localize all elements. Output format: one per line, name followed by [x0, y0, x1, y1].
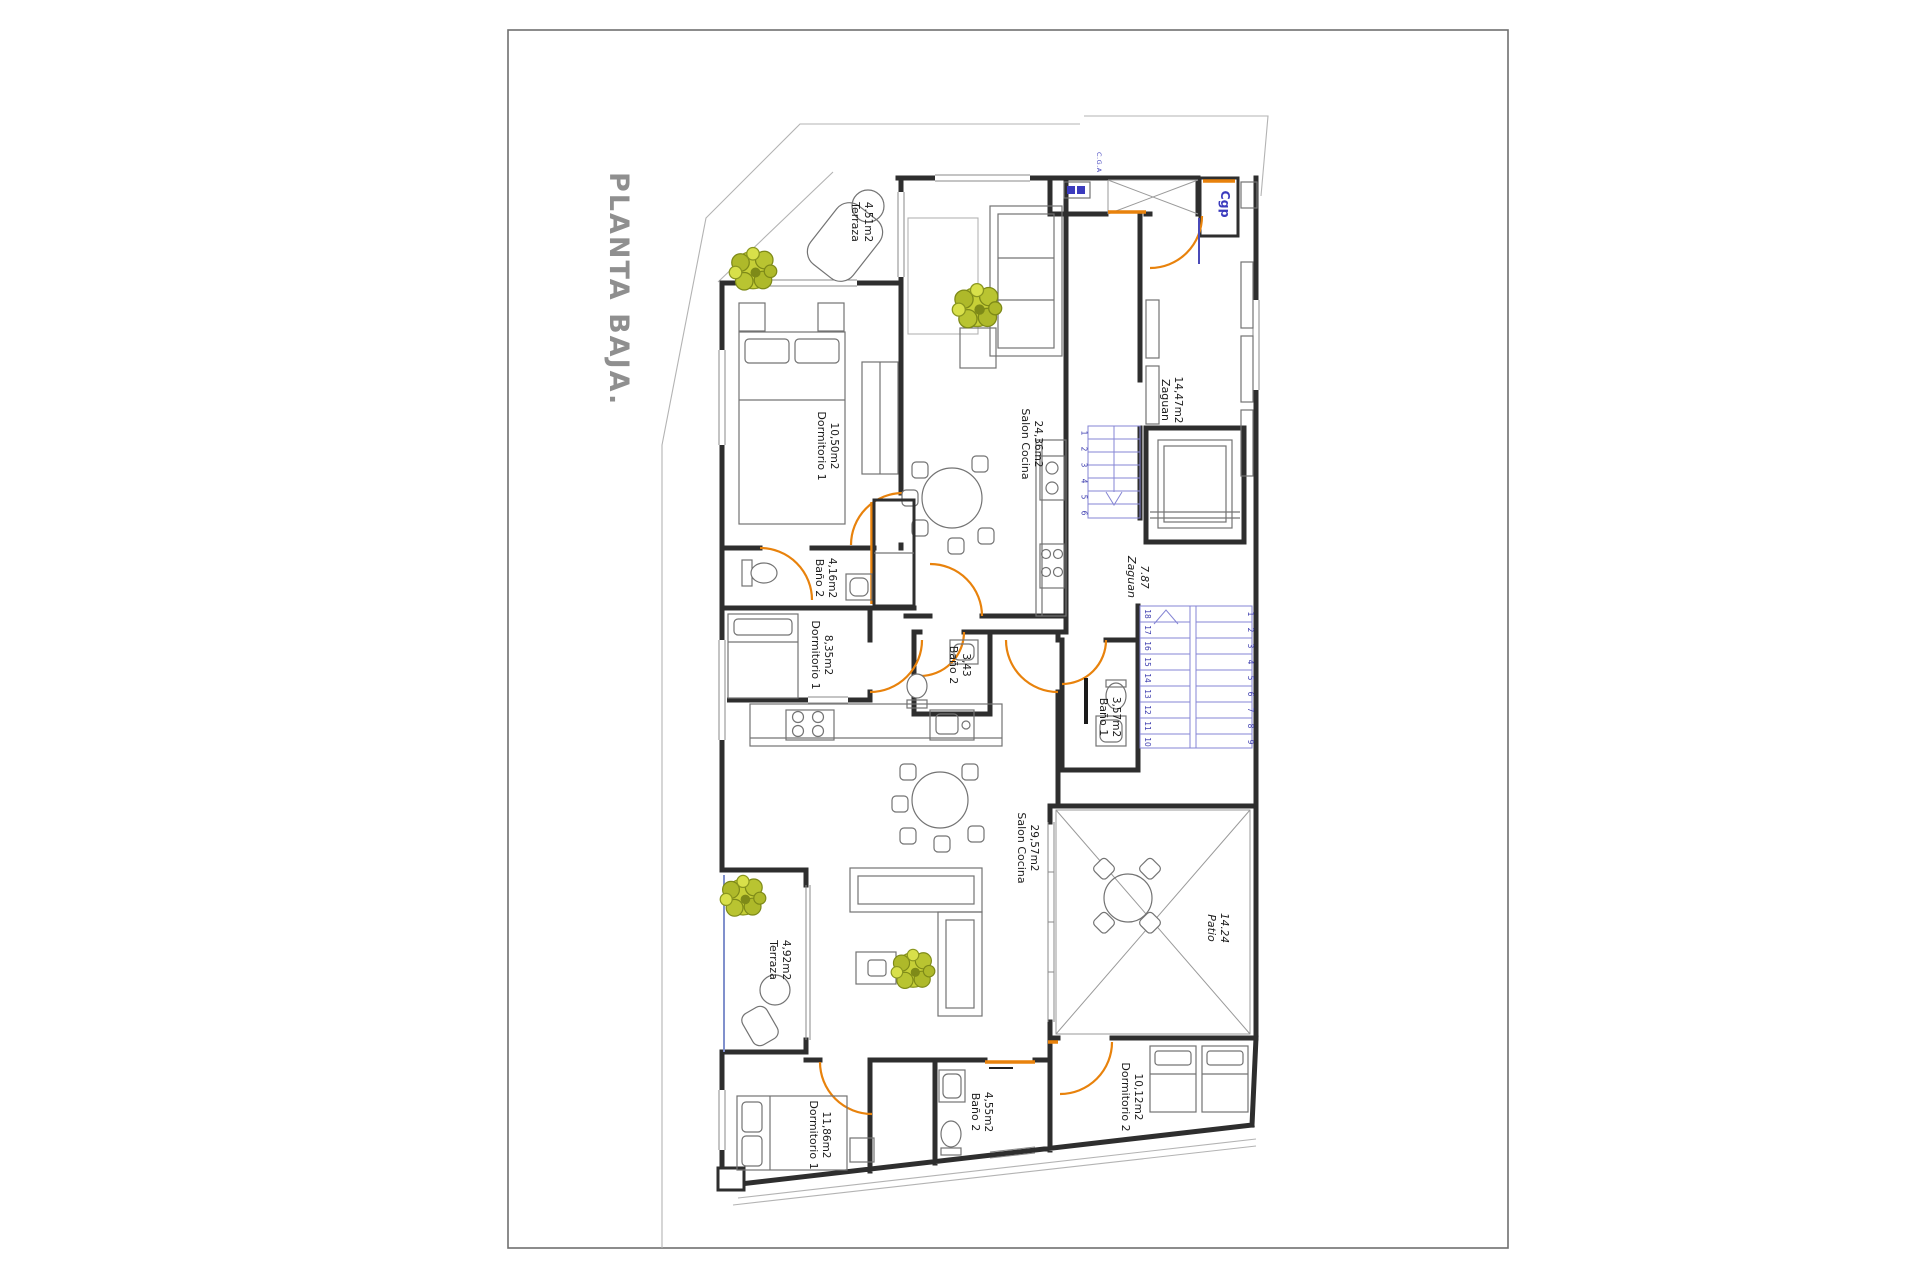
- room-label-terraza1: Terraza4.51m2: [849, 201, 874, 242]
- svg-text:Dormitorio 1: Dormitorio 1: [815, 411, 828, 480]
- svg-text:Dormitorio 2: Dormitorio 2: [1119, 1062, 1132, 1131]
- svg-text:Salon Cocina: Salon Cocina: [1015, 812, 1028, 883]
- svg-text:Baño 2: Baño 2: [813, 559, 826, 597]
- svg-text:13: 13: [1143, 689, 1152, 699]
- svg-text:15: 15: [1143, 657, 1152, 667]
- room-label-zaguan1: Zaguan14,47m2: [1159, 377, 1184, 424]
- svg-text:10,50m2: 10,50m2: [828, 423, 840, 470]
- page-title: PLANTA BAJA.: [603, 172, 634, 406]
- toilet-bano2b: [907, 674, 927, 698]
- svg-text:4,92m2: 4,92m2: [780, 940, 792, 980]
- svg-text:10: 10: [1143, 737, 1152, 747]
- cga-label: C.G.A: [1095, 152, 1103, 173]
- svg-text:Salon Cocina: Salon Cocina: [1019, 408, 1032, 479]
- svg-text:Baño 2: Baño 2: [969, 1093, 982, 1131]
- svg-text:17: 17: [1143, 625, 1152, 635]
- toilet-bano2a: [751, 563, 777, 583]
- svg-text:3: 3: [1080, 463, 1089, 468]
- svg-text:11: 11: [1143, 721, 1152, 731]
- svg-text:14,47m2: 14,47m2: [1172, 377, 1184, 424]
- svg-text:4: 4: [1246, 660, 1255, 665]
- svg-text:14.24: 14.24: [1218, 913, 1230, 943]
- svg-text:6: 6: [1080, 511, 1089, 516]
- svg-text:2: 2: [1246, 628, 1255, 633]
- svg-text:Terraza: Terraza: [849, 201, 862, 242]
- svg-text:Dormitorio 1: Dormitorio 1: [809, 620, 822, 689]
- svg-text:3: 3: [1246, 644, 1255, 649]
- page-border: [508, 30, 1508, 1248]
- svg-text:2: 2: [1080, 447, 1089, 452]
- svg-text:Baño 1: Baño 1: [1097, 698, 1110, 736]
- svg-text:7.87: 7.87: [1138, 565, 1150, 589]
- svg-text:5: 5: [1080, 495, 1089, 500]
- svg-text:29,57m2: 29,57m2: [1028, 825, 1040, 872]
- svg-text:12: 12: [1143, 705, 1152, 715]
- svg-text:8,35m2: 8,35m2: [822, 635, 834, 675]
- svg-text:10,12m2: 10,12m2: [1132, 1074, 1144, 1121]
- svg-text:8: 8: [1246, 724, 1255, 729]
- svg-text:Dormitorio 1: Dormitorio 1: [807, 1100, 820, 1169]
- svg-text:Zaguan: Zaguan: [1159, 379, 1172, 421]
- floor-plan-canvas: PLANTA BAJA. Cgp C.G.A: [0, 0, 1920, 1280]
- floor-plan-sheet: PLANTA BAJA. Cgp C.G.A: [0, 0, 1920, 1280]
- toilet-bano2c: [941, 1121, 961, 1147]
- room-label-bano2c: Baño 24,55m2: [969, 1092, 994, 1132]
- svg-text:Patio: Patio: [1205, 914, 1218, 942]
- room-label-bano1: Baño 13,57m2: [1097, 697, 1122, 737]
- room-label-bano2a: Baño 24,16m2: [813, 558, 838, 598]
- corner-post: [718, 1168, 744, 1190]
- room-label-terraza2: Terraza4,92m2: [767, 939, 792, 980]
- svg-text:7: 7: [1246, 708, 1255, 713]
- svg-text:5: 5: [1246, 676, 1255, 681]
- svg-text:Baño 2: Baño 2: [947, 646, 960, 684]
- svg-text:Zaguan: Zaguan: [1125, 555, 1138, 598]
- svg-text:11,86m2: 11,86m2: [820, 1112, 832, 1159]
- svg-text:4,16m2: 4,16m2: [826, 558, 838, 598]
- svg-text:Terraza: Terraza: [767, 939, 780, 980]
- svg-text:3,43: 3,43: [960, 653, 972, 676]
- svg-text:4.51m2: 4.51m2: [862, 202, 874, 242]
- svg-text:6: 6: [1246, 692, 1255, 697]
- svg-text:18: 18: [1143, 609, 1152, 619]
- svg-text:PLANTA BAJA.: PLANTA BAJA.: [603, 172, 634, 406]
- svg-text:1: 1: [1246, 612, 1255, 617]
- svg-text:3,57m2: 3,57m2: [1110, 697, 1122, 737]
- svg-text:24,36m2: 24,36m2: [1032, 421, 1044, 468]
- svg-text:14: 14: [1143, 673, 1152, 683]
- svg-text:16: 16: [1143, 641, 1152, 651]
- svg-text:4: 4: [1080, 479, 1089, 484]
- cgp-label: Cgp: [1218, 190, 1233, 217]
- svg-text:1: 1: [1080, 431, 1089, 436]
- svg-text:9: 9: [1246, 740, 1255, 745]
- room-label-patio: Patio14.24: [1205, 913, 1230, 943]
- svg-text:4,55m2: 4,55m2: [982, 1092, 994, 1132]
